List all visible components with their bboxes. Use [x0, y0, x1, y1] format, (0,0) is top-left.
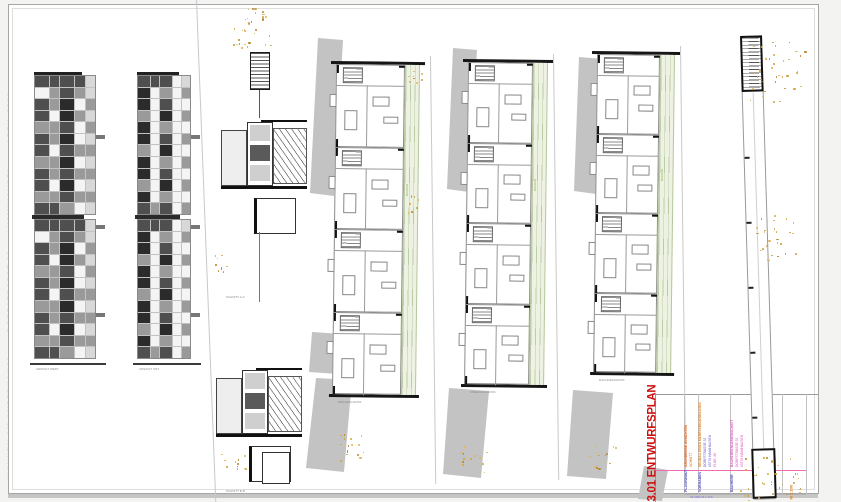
window-cell — [86, 192, 95, 203]
window-cell — [138, 220, 150, 231]
tree-dot — [745, 458, 747, 460]
tree-dot — [789, 42, 790, 43]
apartment-unit — [466, 142, 532, 223]
tree-dot — [773, 54, 774, 56]
window-cell — [160, 99, 172, 110]
window-cell — [151, 255, 159, 266]
furniture-bed — [342, 275, 355, 295]
tree-dot — [346, 454, 348, 455]
furniture-counter — [636, 264, 651, 271]
window-cell — [160, 243, 172, 254]
tree-dot — [782, 76, 784, 78]
tree-dot — [418, 199, 419, 201]
tree-dot — [771, 481, 772, 483]
window-cell — [173, 134, 181, 145]
window-cell — [50, 111, 59, 122]
tree-dot — [782, 484, 783, 485]
window-cell — [75, 324, 84, 335]
window-cell — [60, 278, 74, 289]
tree-dot — [768, 240, 770, 242]
tree-dot — [759, 70, 761, 71]
window-cell — [86, 243, 95, 254]
tree-dot — [762, 248, 764, 250]
window-cell — [50, 232, 59, 243]
wall-tick — [595, 284, 597, 292]
window-cell — [138, 180, 150, 191]
apartment-unit — [596, 54, 660, 134]
wall-tick — [337, 65, 339, 73]
window-cell — [50, 266, 59, 277]
site-strip-inner-line — [753, 93, 765, 449]
window-cell — [86, 88, 95, 99]
tree-dot — [344, 434, 346, 436]
window-cell — [173, 278, 181, 289]
section-roof-hatch — [273, 128, 307, 184]
tree-dot — [797, 51, 798, 52]
tree-dot — [598, 468, 600, 470]
furniture-table — [504, 175, 521, 185]
entry-landing — [327, 259, 334, 272]
tree-dot — [340, 444, 341, 445]
window-cell — [35, 255, 49, 266]
window-cell — [60, 99, 74, 110]
tree-dot — [740, 490, 742, 492]
window-cell — [60, 301, 74, 312]
tree-dot — [347, 450, 348, 452]
window-cell — [151, 134, 159, 145]
tree-dot — [764, 231, 765, 233]
window-cell — [160, 301, 172, 312]
apartment-unit — [593, 292, 657, 372]
section-mid-cell — [250, 125, 270, 141]
window-cell — [50, 88, 59, 99]
window-cell — [60, 347, 74, 358]
floor-plan-strip — [593, 54, 675, 373]
tree-dot — [247, 46, 248, 48]
tree-dot — [597, 465, 598, 467]
section-roof-hatch — [268, 376, 302, 432]
window-cell — [35, 145, 49, 156]
window-cell — [173, 76, 181, 87]
furniture-bed — [341, 358, 354, 378]
tree-dot — [753, 46, 755, 47]
window-cell — [75, 336, 84, 347]
tree-dot — [239, 43, 241, 45]
tree-dot — [771, 460, 773, 462]
window-cell — [151, 289, 159, 300]
tree-dot — [783, 60, 784, 62]
elevation-east — [137, 75, 191, 363]
tree-dot — [408, 76, 409, 77]
tree-dot — [758, 497, 760, 499]
window-cell — [75, 301, 84, 312]
window-cell — [35, 278, 49, 289]
window-cell — [151, 76, 159, 87]
room-divider-h — [468, 164, 533, 166]
furniture-counter — [380, 364, 395, 371]
window-cell — [86, 336, 95, 347]
apartment-unit — [334, 146, 404, 229]
tree-dot — [223, 271, 224, 273]
entry-landing — [588, 321, 595, 334]
window-cell — [173, 122, 181, 133]
entry-landing — [460, 252, 467, 265]
wall-tick — [594, 364, 596, 372]
window-cell — [151, 180, 159, 191]
tree-dot — [769, 260, 771, 261]
tree-dot — [348, 445, 349, 446]
window-cell — [35, 301, 49, 312]
window-cell — [75, 145, 84, 156]
window-cell — [151, 203, 159, 214]
tree-dot — [800, 488, 801, 490]
window-cell — [35, 347, 49, 358]
tree-dot — [234, 28, 235, 30]
window-cell — [138, 324, 150, 335]
window-cell — [182, 203, 190, 214]
window-cell — [138, 313, 150, 324]
room-divider-h — [595, 313, 658, 315]
window-cell — [50, 243, 59, 254]
tree-dot — [792, 233, 794, 234]
tree-dot — [463, 458, 464, 460]
tree-dot — [752, 88, 754, 90]
wall-tick — [465, 376, 467, 384]
window-cell — [50, 203, 59, 214]
window-cell — [151, 111, 159, 122]
furniture-bed — [603, 258, 616, 278]
tree-cluster — [232, 8, 274, 48]
window-cell — [86, 324, 95, 335]
tree-dot — [409, 81, 411, 83]
tree-dot — [245, 469, 247, 470]
window-cell — [50, 289, 59, 300]
balcony-mark — [191, 225, 200, 229]
window-cell — [86, 122, 95, 133]
furniture-counter — [511, 113, 526, 120]
window-cell — [75, 278, 84, 289]
title-column-label: BAUHERR — [731, 475, 735, 493]
tree-dot — [236, 44, 238, 45]
entry-landing — [589, 242, 596, 255]
wall-tick — [596, 214, 598, 222]
window-cell — [35, 289, 49, 300]
section-mid-stack — [242, 370, 268, 434]
tree-dot — [750, 100, 751, 102]
window-cell — [86, 289, 95, 300]
tree-dot — [760, 250, 762, 251]
room-divider-v — [627, 75, 629, 135]
window-cell — [86, 99, 95, 110]
tree-dot — [761, 46, 763, 48]
title-block-top-border — [655, 394, 818, 395]
window-cell — [35, 232, 49, 243]
window-cell — [182, 99, 190, 110]
entry-landing — [326, 341, 333, 354]
tree-dot — [784, 88, 786, 89]
furniture-bed — [476, 107, 489, 127]
window-cell — [138, 243, 150, 254]
plan-title: 3.01 ENTWURFSPLAN — [648, 384, 660, 501]
tree-dot — [777, 465, 779, 466]
room-divider-h — [598, 75, 661, 77]
window-cell — [75, 243, 84, 254]
furniture-counter — [383, 117, 398, 124]
window-cell — [182, 336, 190, 347]
tree-dot — [786, 218, 787, 220]
stair — [604, 57, 624, 73]
tree-dot — [764, 91, 766, 92]
tree-dot — [482, 463, 484, 465]
section-a — [221, 52, 313, 252]
window-cell — [60, 111, 74, 122]
window-cell — [151, 220, 159, 231]
tree-dot — [340, 435, 342, 437]
apartment-unit — [333, 229, 403, 312]
window-cell — [60, 266, 74, 277]
window-cell — [75, 122, 84, 133]
window-cell — [182, 243, 190, 254]
tree-dot — [793, 476, 794, 478]
tree-dot — [237, 468, 239, 470]
furniture-counter — [381, 282, 396, 289]
window-cell — [173, 266, 181, 277]
window-cell — [60, 220, 74, 231]
window-cell — [50, 122, 59, 133]
section-body — [221, 118, 307, 188]
window-cell — [173, 203, 181, 214]
window-cell — [35, 313, 49, 324]
window-cell — [160, 266, 172, 277]
window-cell — [182, 134, 190, 145]
wall-tick — [334, 303, 336, 311]
tree-dot — [789, 232, 791, 234]
tree-dot — [762, 81, 763, 82]
window-cell — [151, 324, 159, 335]
balcony-mark — [191, 313, 200, 317]
tree-dot — [413, 78, 415, 79]
room-divider-v — [496, 244, 498, 305]
room-divider-h — [335, 250, 404, 252]
entry-landing — [459, 333, 466, 346]
window-cell — [182, 313, 190, 324]
window-cell — [138, 255, 150, 266]
tree-dot — [340, 460, 342, 462]
tree-dot — [358, 444, 360, 446]
tree-dot — [786, 75, 788, 76]
window-cell — [138, 203, 150, 214]
furniture-table — [504, 94, 521, 104]
window-cell — [60, 134, 74, 145]
window-cell — [35, 180, 49, 191]
tree-dot — [416, 207, 418, 209]
tree-dot — [775, 45, 777, 47]
entry-landing — [590, 83, 597, 96]
tree-dot — [262, 11, 264, 13]
tree-dot — [771, 255, 772, 257]
window-cell — [160, 122, 172, 133]
tree-dot — [606, 453, 608, 455]
tree-dot — [609, 463, 610, 465]
window-cell — [86, 278, 95, 289]
tree-dot — [786, 494, 788, 496]
furniture-bed — [604, 178, 617, 198]
section-mid-stack — [247, 122, 273, 186]
tree-dot — [772, 42, 774, 43]
tree-dot — [776, 231, 777, 233]
furniture-table — [633, 86, 650, 96]
window-cell — [75, 157, 84, 168]
window-cell — [182, 266, 190, 277]
window-cell — [75, 76, 84, 87]
furniture-bed — [602, 337, 615, 357]
stair — [342, 150, 362, 166]
tree-dot — [774, 215, 776, 216]
entry-landing — [461, 172, 468, 185]
tree-dot — [244, 44, 246, 45]
window-cell — [173, 324, 181, 335]
tree-cluster — [408, 70, 422, 88]
tree-cluster — [460, 446, 490, 472]
room-divider-v — [624, 314, 626, 374]
window-cell — [138, 232, 150, 243]
tree-dot — [265, 16, 267, 18]
section-top-bar — [261, 120, 307, 122]
tree-dot — [262, 14, 264, 15]
site-strip-tick — [745, 157, 750, 159]
tree-dot — [748, 500, 750, 501]
tree-dot — [793, 88, 795, 90]
section-left-room — [221, 130, 247, 186]
tree-cluster — [218, 450, 246, 474]
tree-dot — [242, 30, 243, 31]
window-cell — [60, 145, 74, 156]
balcony-mark — [96, 225, 105, 229]
window-cell — [50, 313, 59, 324]
tree-dot — [464, 446, 465, 448]
stair — [601, 296, 621, 312]
stair — [340, 315, 360, 331]
window-cell — [151, 243, 159, 254]
furniture-counter — [510, 194, 525, 201]
section-annex-2 — [262, 452, 290, 484]
window-cell — [160, 313, 172, 324]
furniture-table — [631, 324, 648, 334]
window-cell — [75, 266, 84, 277]
window-cell — [138, 169, 150, 180]
window-cell — [160, 88, 172, 99]
window-cell — [35, 76, 49, 87]
window-cell — [60, 255, 74, 266]
room-divider-v — [626, 155, 628, 215]
ground-line — [133, 363, 201, 365]
tree-dot — [248, 9, 249, 10]
window-cell — [138, 301, 150, 312]
window-cell — [60, 122, 74, 133]
apartment-unit — [335, 64, 405, 147]
window-cell — [35, 122, 49, 133]
window-cell — [50, 180, 59, 191]
window-cell — [75, 347, 84, 358]
plan-sheet: WOHNEN AM AMPERKANAL DORFSTRASSE 32 HAIM… — [0, 0, 841, 502]
tree-dot — [474, 455, 476, 457]
furniture-table — [503, 255, 520, 265]
tree-dot — [799, 492, 801, 493]
stair — [602, 216, 622, 232]
wall-tick — [596, 205, 598, 213]
wall-tick — [335, 221, 337, 229]
tree-dot — [254, 33, 255, 34]
tree-dot — [777, 242, 778, 244]
window-cell — [173, 232, 181, 243]
tree-cluster — [738, 456, 800, 500]
tree-dot — [756, 227, 758, 229]
window-cell — [151, 157, 159, 168]
tree-dot — [251, 21, 252, 23]
window-cell — [35, 336, 49, 347]
tree-dot — [793, 482, 795, 484]
window-cell — [173, 289, 181, 300]
furniture-table — [372, 97, 389, 107]
section-b-label: SCHNITT B-B — [226, 490, 245, 493]
furniture-bed — [474, 268, 487, 288]
window-cell — [138, 336, 150, 347]
tree-cluster — [748, 40, 806, 102]
title-entry: 85778 HAIMHAUSEN — [709, 435, 712, 467]
tree-dot — [463, 453, 465, 454]
section-chimney-box — [250, 52, 270, 90]
site-strip-tick — [747, 222, 752, 224]
window-cell — [50, 76, 59, 87]
tree-dot — [215, 264, 217, 265]
tree-dot — [762, 96, 764, 97]
tree-cluster — [404, 194, 418, 216]
tree-dot — [605, 455, 606, 457]
window-cell — [75, 99, 84, 110]
window-cell — [35, 192, 49, 203]
window-cell — [138, 134, 150, 145]
window-cell — [75, 169, 84, 180]
window-cell — [86, 169, 95, 180]
apartment-unit — [467, 62, 533, 143]
window-cell — [86, 347, 95, 358]
floor-plan-strip — [464, 62, 548, 385]
window-cell — [138, 99, 150, 110]
tree-dot — [765, 58, 767, 60]
tree-dot — [766, 457, 768, 459]
plan-label: ERDGESCHOSS — [338, 401, 361, 404]
tree-dot — [763, 457, 765, 459]
tree-dot — [598, 455, 600, 457]
tree-dot — [596, 467, 598, 469]
furniture-table — [371, 179, 388, 189]
tree-dot — [795, 253, 796, 255]
tree-dot — [766, 245, 768, 247]
tree-dot — [772, 493, 774, 495]
window-cell — [60, 88, 74, 99]
tree-dot — [613, 446, 614, 448]
tree-dot — [363, 452, 364, 453]
window-cell — [35, 111, 49, 122]
window-cell — [151, 122, 159, 133]
furniture-table — [632, 245, 649, 255]
window-cell — [173, 192, 181, 203]
tree-dot — [773, 63, 775, 64]
ground-line — [30, 363, 106, 365]
window-cell — [86, 232, 95, 243]
window-cell — [60, 157, 74, 168]
tree-dot — [775, 81, 776, 82]
